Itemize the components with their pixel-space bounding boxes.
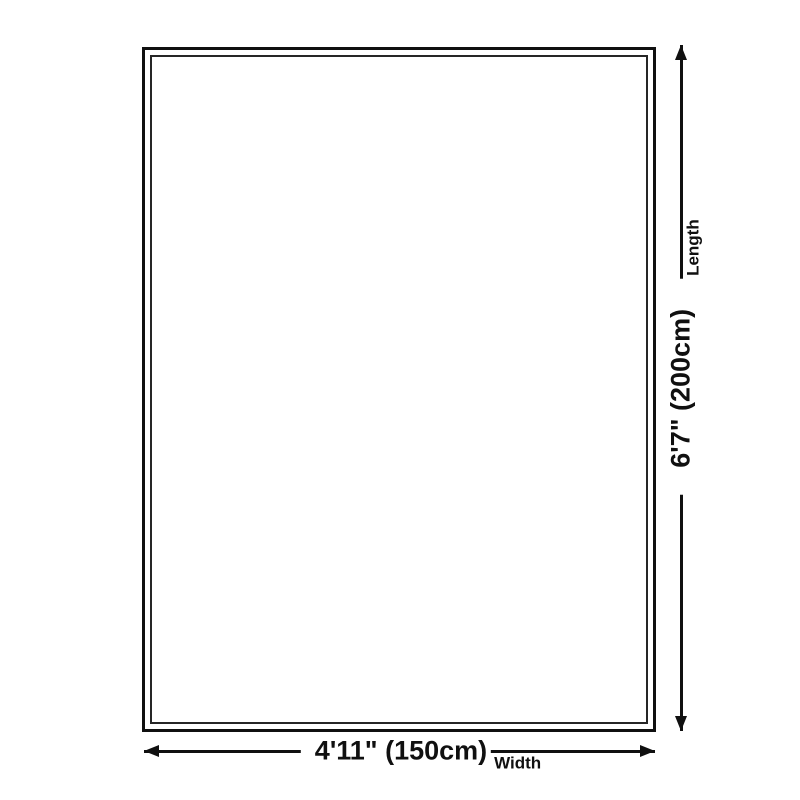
length-name: Length [683,219,703,276]
arrow-up-icon [675,45,687,60]
width-value: 4'11" (150cm) [301,733,491,770]
rug-outline [142,47,656,732]
length-dimension-label: 6'7" (200cm) Length [663,219,700,494]
width-dimension-label: 4'11" (150cm) Width [301,733,541,770]
arrow-right-icon [640,745,655,757]
rug-inner-outline [150,55,648,724]
arrow-down-icon [675,716,687,731]
length-value: 6'7" (200cm) [663,279,700,495]
arrow-left-icon [144,745,159,757]
size-diagram: 6'7" (200cm) Length 4'11" (150cm) Width [0,0,800,800]
width-name: Width [494,753,541,773]
